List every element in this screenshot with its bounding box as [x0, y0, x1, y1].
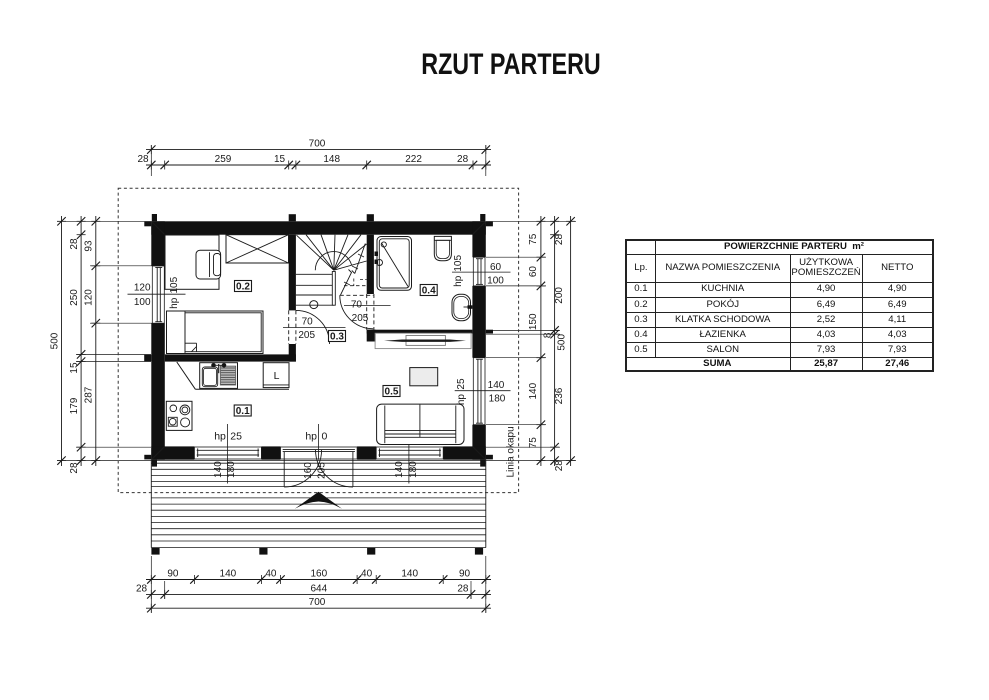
svg-text:28: 28 — [69, 238, 80, 250]
svg-text:250: 250 — [69, 289, 80, 306]
svg-text:8: 8 — [543, 332, 554, 338]
svg-text:25: 25 — [456, 378, 467, 390]
svg-text:28: 28 — [136, 583, 148, 594]
svg-text:0.2: 0.2 — [236, 282, 250, 293]
svg-text:75: 75 — [528, 437, 539, 449]
svg-text:644: 644 — [310, 583, 327, 594]
svg-text:40: 40 — [361, 569, 373, 580]
svg-text:90: 90 — [167, 569, 179, 580]
svg-text:60: 60 — [490, 262, 502, 273]
svg-text:120: 120 — [134, 283, 151, 294]
svg-text:205: 205 — [352, 313, 369, 324]
svg-text:150: 150 — [528, 313, 539, 330]
svg-text:205: 205 — [298, 330, 315, 341]
svg-text:148: 148 — [323, 154, 340, 165]
svg-text:140: 140 — [401, 569, 418, 580]
svg-text:200: 200 — [554, 287, 565, 304]
svg-text:28: 28 — [457, 583, 469, 594]
svg-text:160: 160 — [310, 569, 327, 580]
svg-text:93: 93 — [84, 240, 95, 252]
svg-text:700: 700 — [309, 139, 326, 150]
svg-text:140: 140 — [394, 461, 405, 478]
svg-text:25: 25 — [230, 431, 242, 443]
svg-text:28: 28 — [554, 460, 565, 472]
svg-text:28: 28 — [137, 154, 149, 165]
svg-text:259: 259 — [215, 154, 232, 165]
svg-text:90: 90 — [459, 569, 471, 580]
svg-text:L: L — [274, 370, 280, 382]
svg-text:140: 140 — [488, 380, 505, 391]
svg-text:140: 140 — [528, 382, 539, 399]
svg-text:105: 105 — [453, 255, 464, 272]
svg-text:hp: hp — [305, 431, 317, 443]
svg-text:28: 28 — [554, 234, 565, 246]
svg-text:75: 75 — [528, 233, 539, 245]
svg-text:60: 60 — [528, 266, 539, 278]
svg-text:160: 160 — [303, 462, 314, 479]
svg-text:236: 236 — [554, 387, 565, 404]
svg-text:500: 500 — [50, 332, 61, 349]
svg-text:hp: hp — [169, 297, 180, 309]
svg-text:70: 70 — [351, 300, 363, 311]
svg-text:Linia okapu: Linia okapu — [506, 426, 517, 477]
svg-text:70: 70 — [302, 317, 314, 328]
svg-text:140: 140 — [220, 569, 237, 580]
svg-text:105: 105 — [169, 276, 180, 293]
svg-text:140: 140 — [213, 461, 224, 478]
svg-text:179: 179 — [69, 397, 80, 414]
svg-text:40: 40 — [265, 569, 277, 580]
svg-text:15: 15 — [274, 154, 286, 165]
svg-text:28: 28 — [69, 462, 80, 474]
svg-text:hp: hp — [453, 275, 464, 287]
svg-text:0.5: 0.5 — [385, 387, 399, 398]
svg-text:222: 222 — [405, 154, 422, 165]
svg-text:15: 15 — [69, 362, 80, 374]
svg-text:205: 205 — [316, 462, 327, 479]
svg-text:287: 287 — [84, 386, 95, 403]
svg-text:28: 28 — [457, 154, 469, 165]
svg-text:500: 500 — [557, 334, 568, 351]
svg-text:0.1: 0.1 — [236, 406, 250, 417]
svg-text:0.4: 0.4 — [422, 286, 436, 297]
svg-text:120: 120 — [84, 289, 95, 306]
svg-text:180: 180 — [408, 461, 419, 478]
svg-text:0: 0 — [322, 431, 328, 443]
svg-text:180: 180 — [489, 394, 506, 405]
svg-text:700: 700 — [309, 597, 326, 608]
svg-text:100: 100 — [487, 276, 504, 287]
svg-text:hp: hp — [214, 431, 226, 443]
svg-text:hp: hp — [456, 394, 467, 406]
svg-text:100: 100 — [134, 297, 151, 308]
svg-text:0.3: 0.3 — [330, 332, 344, 343]
svg-text:180: 180 — [226, 461, 237, 478]
